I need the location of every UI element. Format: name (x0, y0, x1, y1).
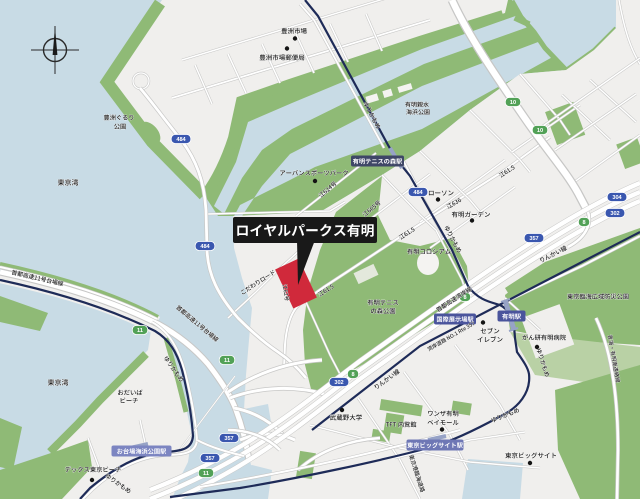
svg-text:484: 484 (413, 190, 423, 196)
svg-text:357: 357 (224, 436, 233, 442)
svg-text:10: 10 (537, 128, 543, 134)
svg-text:302: 302 (334, 380, 343, 386)
svg-text:357: 357 (205, 456, 214, 462)
svg-text:302: 302 (610, 211, 619, 217)
svg-text:8: 8 (351, 372, 354, 378)
svg-text:11: 11 (224, 358, 230, 364)
svg-text:8: 8 (582, 220, 585, 226)
svg-text:484: 484 (200, 244, 210, 250)
svg-text:484: 484 (176, 137, 186, 143)
svg-text:304: 304 (612, 195, 622, 201)
svg-text:11: 11 (203, 471, 209, 477)
svg-text:10: 10 (510, 100, 516, 106)
svg-text:8: 8 (463, 295, 466, 301)
svg-text:357: 357 (529, 236, 538, 242)
svg-text:11: 11 (137, 328, 143, 334)
